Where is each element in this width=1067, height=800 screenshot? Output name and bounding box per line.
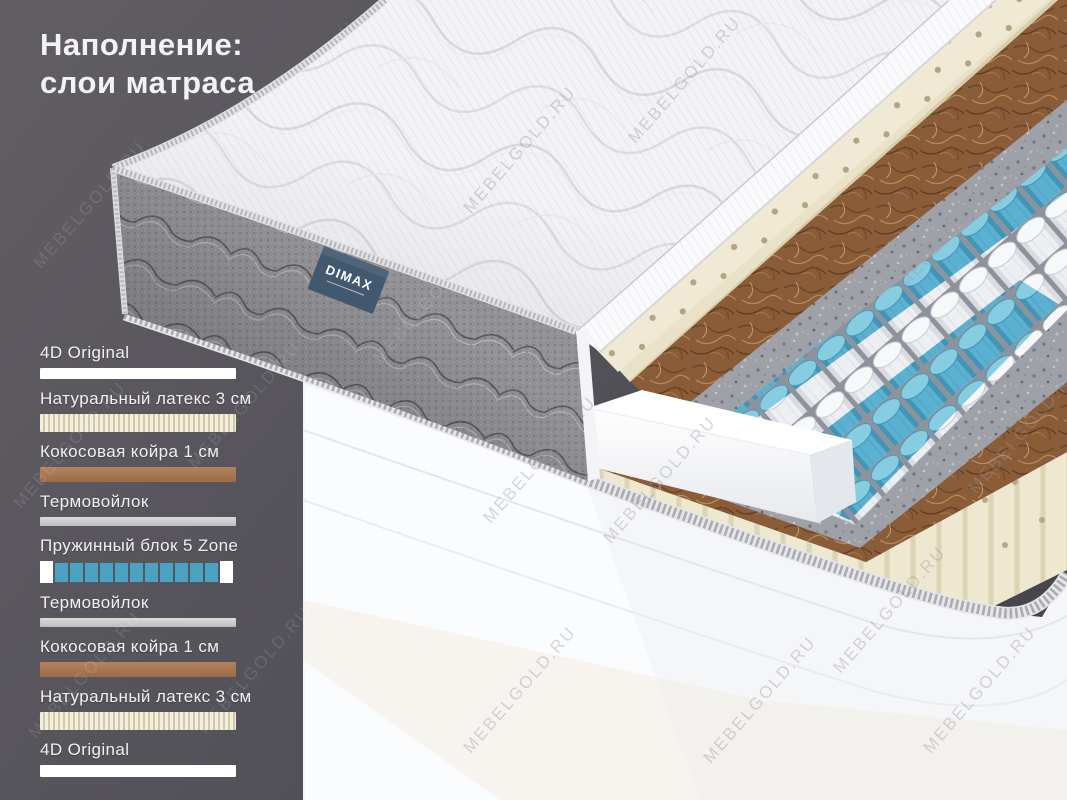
- layer-item: Кокосовая койра 1 см: [40, 441, 240, 482]
- layer-legend: 4D OriginalНатуральный латекс 3 смКокосо…: [40, 342, 240, 786]
- spring-square-blue: [145, 563, 158, 582]
- layer-label: 4D Original: [40, 739, 240, 760]
- spring-square-blue: [85, 563, 98, 582]
- layer-swatch-latex: [40, 414, 236, 432]
- layer-label: Термовойлок: [40, 491, 240, 512]
- layer-swatch-felt: [40, 517, 236, 526]
- layer-label: Термовойлок: [40, 592, 240, 613]
- layer-swatch-coir: [40, 662, 236, 677]
- layer-label: Пружинный блок 5 Zone: [40, 535, 240, 556]
- title-line-1: Наполнение:: [40, 26, 255, 64]
- mattress-infographic: DIMAX Наполнение: слои матраса 4D Origin…: [0, 0, 1067, 800]
- layer-item: 4D Original: [40, 342, 240, 379]
- spring-square-blue: [175, 563, 188, 582]
- spring-square-blue: [205, 563, 218, 582]
- layer-label: Кокосовая койра 1 см: [40, 441, 240, 462]
- layer-item: Термовойлок: [40, 491, 240, 526]
- layer-item: Натуральный латекс 3 см: [40, 388, 240, 432]
- layer-swatch-latex: [40, 712, 236, 730]
- layer-item: Термовойлок: [40, 592, 240, 627]
- layer-item: Натуральный латекс 3 см: [40, 686, 240, 730]
- layer-item: Кокосовая койра 1 см: [40, 636, 240, 677]
- layer-swatch-springs: [40, 561, 240, 583]
- layer-label: Натуральный латекс 3 см: [40, 388, 240, 409]
- spring-square-blue: [115, 563, 128, 582]
- spring-square-blue: [70, 563, 83, 582]
- spring-square-blue: [100, 563, 113, 582]
- spring-square-white: [220, 561, 233, 583]
- layer-swatch-cover2: [40, 765, 236, 777]
- layer-label: Натуральный латекс 3 см: [40, 686, 240, 707]
- title-line-2: слои матраса: [40, 64, 255, 102]
- layer-swatch-felt: [40, 618, 236, 627]
- layer-swatch-cover: [40, 368, 236, 379]
- layer-item: Пружинный блок 5 Zone: [40, 535, 240, 583]
- spring-square-blue: [55, 563, 68, 582]
- layer-label: 4D Original: [40, 342, 240, 363]
- spring-square-blue: [130, 563, 143, 582]
- spring-square-white: [40, 561, 53, 583]
- page-title: Наполнение: слои матраса: [40, 26, 255, 102]
- layer-swatch-coir: [40, 467, 236, 482]
- layer-item: 4D Original: [40, 739, 240, 777]
- spring-square-blue: [190, 563, 203, 582]
- layer-label: Кокосовая койра 1 см: [40, 636, 240, 657]
- spring-square-blue: [160, 563, 173, 582]
